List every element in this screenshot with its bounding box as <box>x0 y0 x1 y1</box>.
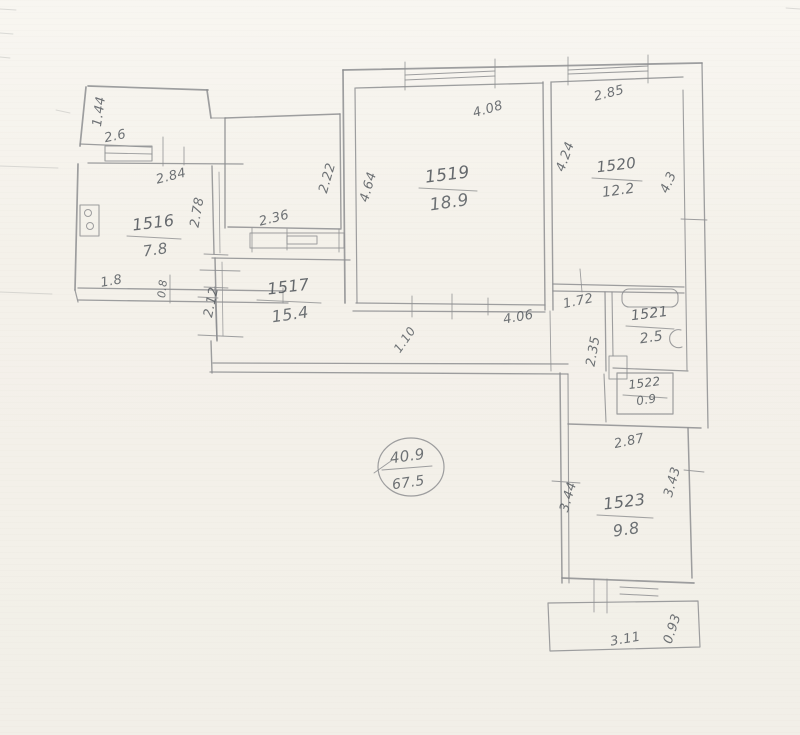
dimension-label: 0.93 <box>661 612 685 646</box>
stamp-living-area: 40.9 <box>389 445 426 468</box>
wall-line <box>343 70 345 303</box>
wall-line <box>200 270 240 271</box>
wall-line <box>210 372 568 374</box>
wall-line <box>88 86 208 90</box>
wall-line <box>211 341 212 373</box>
room-area: 2.5 <box>639 328 664 347</box>
wall-line <box>80 87 86 146</box>
wall-line <box>568 66 648 70</box>
built-in-closet <box>250 233 344 248</box>
wall-line <box>553 284 684 287</box>
room-area: 18.9 <box>428 190 470 215</box>
stove-burner <box>85 210 92 217</box>
wall-line <box>562 578 694 583</box>
dimension-label: 2.84 <box>155 166 188 188</box>
door-leaf <box>609 356 627 379</box>
room-area: 7.8 <box>142 239 169 260</box>
wall-line <box>212 258 350 260</box>
dimension-label: 2.12 <box>201 286 222 319</box>
wall-line <box>543 82 545 310</box>
stove-burner <box>87 223 94 230</box>
room-number: 1523 <box>602 490 646 514</box>
room-label-underline <box>419 188 477 191</box>
wall-line <box>604 374 606 422</box>
paper-streak <box>0 166 58 168</box>
room-area: 15.4 <box>270 302 310 326</box>
wall-line <box>204 254 228 255</box>
wall-line <box>568 374 569 583</box>
wall-line <box>560 373 562 583</box>
wall-line <box>405 71 495 75</box>
dimension-label: 1.72 <box>562 291 595 312</box>
wall-line <box>374 461 391 473</box>
room-label-underline <box>626 326 674 329</box>
wall-line <box>207 90 211 118</box>
dimension-label: 2.85 <box>593 83 626 105</box>
dimension-label: 3.43 <box>661 465 684 498</box>
floor-plan-svg: 1.442.62.842.781.80.82.222.362.124.644.0… <box>0 0 800 735</box>
room-label-underline <box>597 515 653 518</box>
wall-line <box>355 88 357 303</box>
sink <box>670 330 682 348</box>
wall-line <box>612 292 613 356</box>
dimension-label: 1.44 <box>90 95 109 127</box>
wall-line <box>78 300 288 303</box>
paper-streak <box>56 110 70 113</box>
wall-line <box>620 587 658 589</box>
wall-line <box>382 466 432 470</box>
wall-line <box>605 292 606 371</box>
wall-line <box>684 470 704 472</box>
wall-line <box>213 363 568 364</box>
paper-streak <box>0 292 52 294</box>
wall-line <box>568 424 701 428</box>
wall-line <box>75 164 78 290</box>
paper-streak <box>786 8 800 9</box>
wall-line <box>75 290 78 302</box>
room-label-underline <box>127 236 181 239</box>
wall-line <box>683 90 687 370</box>
wall-line <box>550 311 551 371</box>
room-area: 0.9 <box>635 391 657 408</box>
dimension-label: 4.3 <box>658 170 681 196</box>
paper-streak <box>0 57 10 58</box>
wall-line <box>198 335 243 337</box>
wall-line <box>551 82 553 310</box>
wall-line <box>219 172 220 253</box>
dimension-label: 4.08 <box>471 98 504 121</box>
stamp-total-area: 67.5 <box>391 473 426 493</box>
wall-line <box>553 291 684 293</box>
wall-line <box>552 77 683 82</box>
dimension-label: 0.8 <box>155 279 170 299</box>
dimension-label: 2.78 <box>188 196 208 229</box>
room-number: 1521 <box>630 304 669 324</box>
wall-line <box>356 83 543 88</box>
wall-line <box>356 303 545 305</box>
dimension-label: 2.36 <box>258 208 291 230</box>
wall-line <box>620 594 658 596</box>
dimension-label: 2.22 <box>316 161 339 194</box>
room-number: 1517 <box>266 274 311 298</box>
wall-line <box>88 163 243 164</box>
paper-streak <box>0 9 16 10</box>
wall-line <box>613 368 688 371</box>
wall-line <box>212 166 214 254</box>
dimension-label: 4.64 <box>357 170 380 203</box>
dimension-label: 4.24 <box>553 140 578 174</box>
dimension-label: 4.06 <box>502 308 535 328</box>
wall-line <box>105 153 152 154</box>
dimension-label: 2.35 <box>584 335 604 368</box>
dimension-label: 1.10 <box>391 324 419 355</box>
room-label-underline <box>592 178 642 181</box>
wall-line <box>568 71 648 74</box>
room-area: 12.2 <box>601 181 636 201</box>
room-area: 9.8 <box>612 518 641 541</box>
wall-line <box>688 428 692 578</box>
wall-line <box>222 262 223 336</box>
paper-streak <box>0 33 13 34</box>
wall-line <box>405 76 495 80</box>
wall-line <box>225 114 340 118</box>
wall-line <box>702 63 708 428</box>
room-number: 1520 <box>596 154 638 177</box>
dimension-label: 2.6 <box>103 127 128 146</box>
wall-line <box>340 114 341 228</box>
room-number: 1522 <box>628 374 662 392</box>
room-number: 1516 <box>131 211 175 235</box>
room-number: 1519 <box>424 162 471 187</box>
dimension-label: 2.87 <box>613 431 646 452</box>
wall-line <box>228 227 341 229</box>
scanned-floor-plan: 1.442.62.842.781.80.82.222.362.124.644.0… <box>0 0 800 735</box>
dimension-label: 3.11 <box>609 630 642 650</box>
closet-inner <box>287 236 317 244</box>
wall-line <box>580 269 582 292</box>
